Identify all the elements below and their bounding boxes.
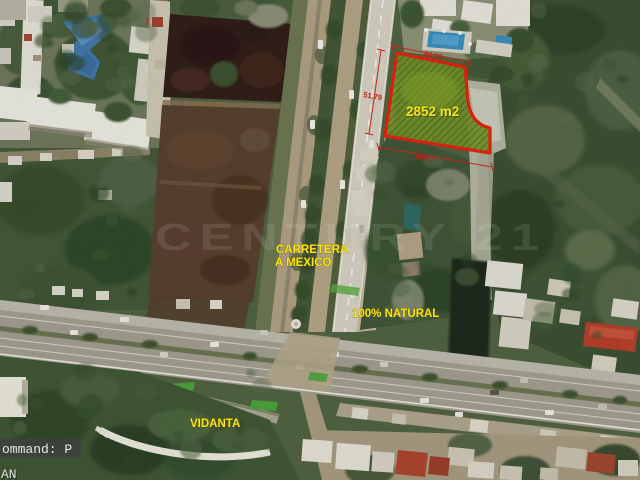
svg-text:CARRETERA: CARRETERA (276, 244, 348, 256)
svg-text:VIDANTA: VIDANTA (190, 418, 240, 430)
svg-text:AN: AN (1, 467, 17, 480)
svg-text:2852 m2: 2852 m2 (406, 104, 459, 119)
svg-text:CENTURY 21: CENTURY 21 (155, 217, 547, 259)
svg-text:A MEXICO: A MEXICO (275, 257, 331, 269)
svg-text:100% NATURAL: 100% NATURAL (352, 308, 439, 320)
svg-text:ommand: P: ommand: P (2, 442, 72, 457)
